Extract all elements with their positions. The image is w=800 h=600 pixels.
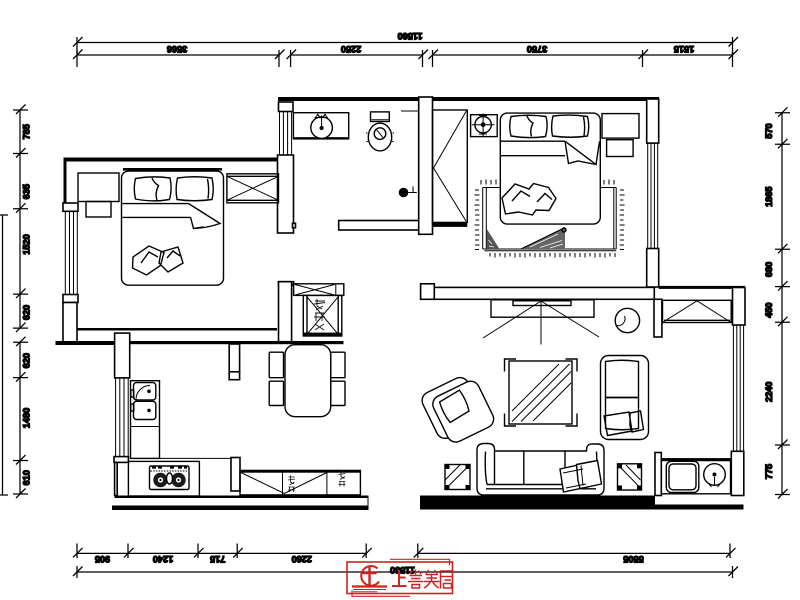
svg-text:1515: 1515 bbox=[674, 44, 694, 54]
svg-text:3750: 3750 bbox=[527, 44, 547, 54]
svg-text:635: 635 bbox=[22, 184, 32, 199]
svg-text:11560: 11560 bbox=[397, 31, 422, 41]
svg-text:715: 715 bbox=[210, 554, 225, 564]
svg-text:3566: 3566 bbox=[167, 44, 187, 54]
svg-text:2240: 2240 bbox=[764, 382, 774, 402]
svg-text:620: 620 bbox=[22, 353, 32, 368]
svg-text:905: 905 bbox=[95, 554, 110, 564]
svg-text:570: 570 bbox=[764, 123, 774, 138]
svg-text:785: 785 bbox=[22, 124, 32, 139]
svg-text:1865: 1865 bbox=[764, 186, 774, 206]
svg-text:1480: 1480 bbox=[22, 408, 32, 428]
svg-text:450: 450 bbox=[764, 303, 774, 318]
svg-text:1520: 1520 bbox=[22, 234, 32, 254]
svg-text:1240: 1240 bbox=[153, 554, 173, 564]
svg-text:5505: 5505 bbox=[623, 554, 643, 564]
svg-text:620: 620 bbox=[22, 305, 32, 320]
svg-text:610: 610 bbox=[22, 470, 32, 485]
svg-text:2260: 2260 bbox=[291, 554, 311, 564]
svg-text:680: 680 bbox=[764, 262, 774, 277]
svg-text:775: 775 bbox=[764, 464, 774, 479]
svg-text:2250: 2250 bbox=[341, 44, 361, 54]
